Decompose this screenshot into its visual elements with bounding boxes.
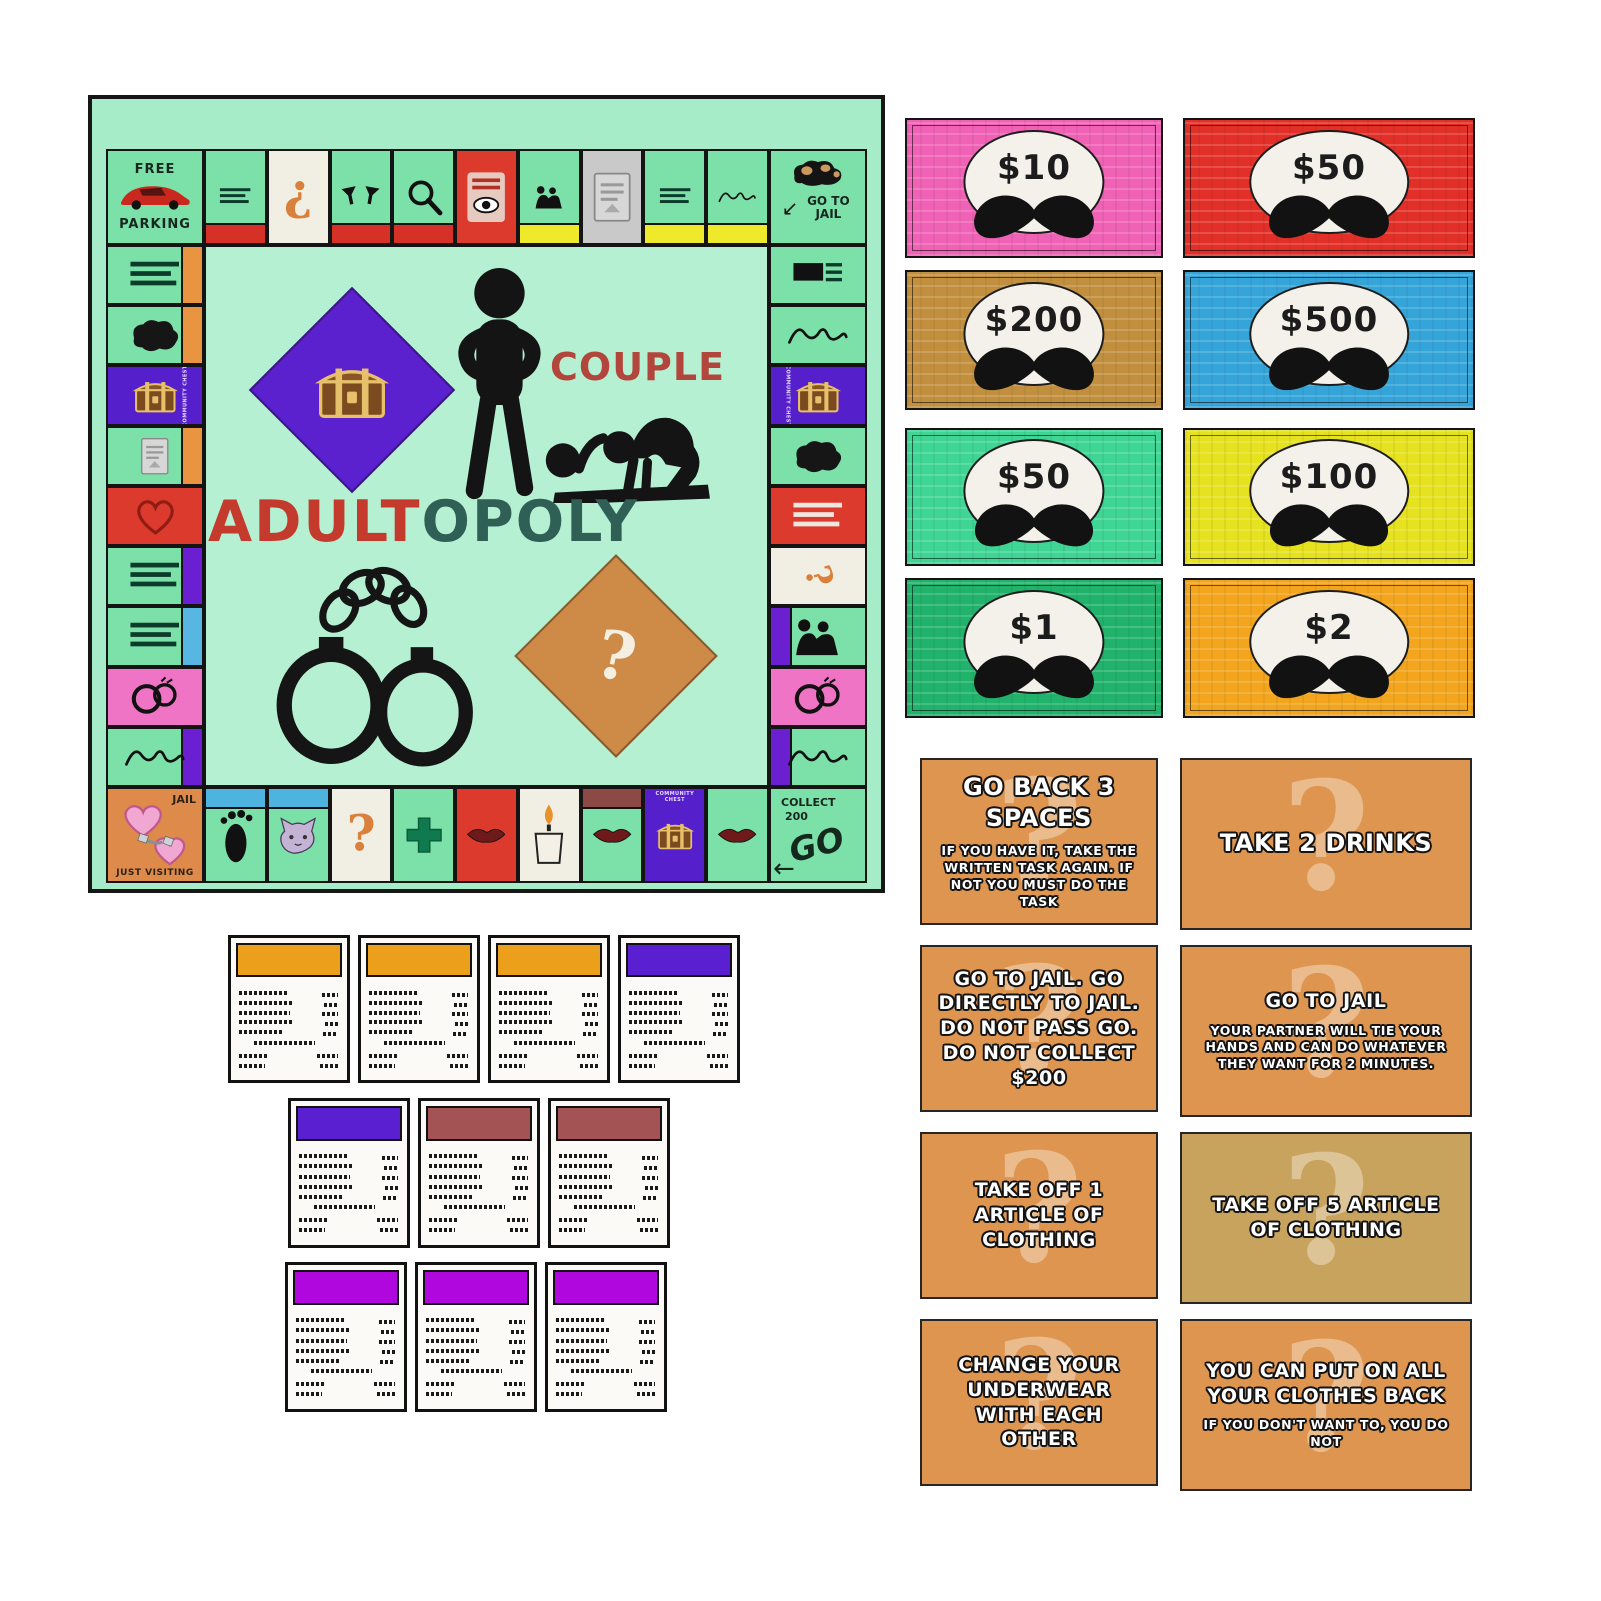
- deed-text-noise: [429, 1154, 478, 1158]
- deed-text-noise: [645, 1186, 658, 1190]
- deed-text-noise: [382, 1156, 398, 1160]
- deed-text-noise: [714, 1003, 728, 1007]
- bill-value: $1: [965, 608, 1102, 648]
- deed-text-noise: [447, 1054, 468, 1058]
- question-mark-icon: ?: [533, 573, 699, 739]
- board-center: COUPLE ADULTOPOLY ?: [204, 245, 769, 787]
- task-card-title: YOU CAN PUT ON ALL YOUR CLOTHES BACK: [1199, 1359, 1452, 1408]
- rings-icon: [784, 676, 852, 716]
- parking-label: PARKING: [119, 217, 191, 232]
- deed-text-noise: [429, 1175, 480, 1179]
- deed-text-noise: [637, 1392, 655, 1396]
- deed-text-noise: [299, 1175, 350, 1179]
- rings-icon: [121, 676, 189, 716]
- board-space-bottom-4: [392, 787, 455, 883]
- task-card-6: ? TAKE OFF 5 ARTICLE OF CLOTHING: [1180, 1132, 1472, 1304]
- deed-text-noise: [369, 1001, 424, 1005]
- task-card-text: TAKE OFF 5 ARTICLE OF CLOTHING: [1199, 1146, 1452, 1291]
- board-space-right-5: [769, 486, 867, 546]
- deed-text-noise: [369, 991, 418, 995]
- deed-text-noise: [296, 1339, 347, 1343]
- board-space-top-4: [392, 149, 455, 245]
- deed-text-noise: [559, 1228, 584, 1232]
- board-space-left-9: [106, 727, 204, 787]
- task-card-text: GO TO JAIL YOUR PARTNER WILL TIE YOUR HA…: [1199, 959, 1452, 1104]
- task-card-title: TAKE OFF 5 ARTICLE OF CLOTHING: [1199, 1193, 1452, 1242]
- mustache-icon: [1245, 187, 1412, 250]
- deed-text-noise: [322, 1012, 338, 1016]
- deed-text-noise: [299, 1218, 328, 1222]
- chest-icon: [784, 375, 852, 415]
- money-bill-1: $1: [905, 578, 1163, 718]
- deed-text-noise: [509, 1340, 525, 1344]
- deed-text-noise: [642, 1350, 655, 1354]
- deed-text-noise: [556, 1318, 605, 1322]
- deed-text-noise: [385, 1186, 398, 1190]
- board-space-bottom-7: [581, 787, 644, 883]
- board-space-right-6: ?: [769, 546, 867, 606]
- deed-text-noise: [556, 1349, 610, 1353]
- deed-text-noise: [639, 1340, 655, 1344]
- magnifier-icon: [403, 164, 445, 230]
- deed-text-noise: [299, 1185, 353, 1189]
- deed-text-noise: [577, 1054, 598, 1058]
- deed-text-noise: [556, 1359, 601, 1363]
- deed-text-noise: [512, 1176, 528, 1180]
- script-icon: [121, 737, 189, 777]
- deed-text-noise: [629, 1001, 684, 1005]
- deed-text-noise: [559, 1195, 604, 1199]
- task-card-body: YOUR PARTNER WILL TIE YOUR HANDS AND CAN…: [1199, 1023, 1452, 1074]
- board-space-bottom-8: COMMUNITY CHEST: [643, 787, 706, 883]
- community-chest-label: COMMUNITY CHEST: [182, 365, 188, 425]
- board-space-top-5: [455, 149, 518, 245]
- task-card-text: TAKE 2 DRINKS: [1199, 772, 1452, 917]
- deed-card-r1-c4: [618, 935, 740, 1083]
- textlines-icon: [121, 255, 189, 295]
- deed-text-noise: [239, 1011, 290, 1015]
- deed-text-noise: [381, 1330, 395, 1334]
- textlines-icon: [121, 616, 189, 656]
- board-space-bottom-2: [267, 787, 330, 883]
- corner-go: COLLECT 200 GO ←: [769, 787, 867, 883]
- textlines-icon: [654, 164, 696, 230]
- deed-text-noise: [454, 1003, 468, 1007]
- board-space-right-8: [769, 667, 867, 727]
- critters-icon: [787, 157, 849, 191]
- deed-text-noise: [239, 1054, 268, 1058]
- bill-value: $200: [965, 300, 1102, 340]
- deed-text-noise: [559, 1154, 608, 1158]
- deed-text-noise: [582, 993, 598, 997]
- board-space-right-4: [769, 426, 867, 486]
- deed-text-noise: [426, 1359, 471, 1363]
- deed-body: [553, 1311, 659, 1402]
- chest-icon: [654, 802, 696, 868]
- deed-text-noise: [317, 1054, 338, 1058]
- deed-text-noise: [499, 1064, 524, 1068]
- task-card-body: IF YOU HAVE IT, TAKE THE WRITTEN TASK AG…: [936, 843, 1142, 911]
- bill-value: $10: [965, 148, 1102, 188]
- deed-text-noise: [239, 991, 288, 995]
- deed-text-noise: [580, 1064, 598, 1068]
- deed-text-noise: [556, 1392, 581, 1396]
- task-card-title: GO TO JAIL. GO DIRECTLY TO JAIL. DO NOT …: [936, 967, 1142, 1090]
- glasses-icon: [340, 164, 382, 230]
- board-space-left-4: [106, 426, 204, 486]
- deed-text-noise: [514, 1041, 575, 1045]
- deed-text-noise: [379, 1340, 395, 1344]
- deed-text-noise: [644, 1041, 705, 1045]
- deed-text-noise: [384, 1166, 398, 1170]
- flag-icon: [784, 255, 852, 295]
- board-space-right-2: [769, 305, 867, 365]
- textlines-icon: [214, 164, 256, 230]
- deed-text-noise: [509, 1320, 525, 1324]
- deed-text-noise: [429, 1164, 484, 1168]
- deed-text-noise: [507, 1392, 525, 1396]
- go-to-jail-label: GO TO JAIL: [802, 195, 854, 221]
- deed-text-noise: [444, 1205, 505, 1209]
- chest-icon: [121, 375, 189, 415]
- deed-body: [236, 984, 342, 1074]
- cross-icon: [403, 802, 445, 868]
- deed-text-noise: [712, 1012, 728, 1016]
- deed-text-noise: [254, 1041, 315, 1045]
- deed-text-noise: [374, 1382, 395, 1386]
- deed-text-noise: [644, 1166, 658, 1170]
- bill-value: $50: [965, 457, 1102, 497]
- task-card-4: ? GO TO JAIL YOUR PARTNER WILL TIE YOUR …: [1180, 945, 1472, 1117]
- heart-icon: [121, 496, 189, 536]
- board-space-left-6: [106, 546, 204, 606]
- deed-text-noise: [379, 1320, 395, 1324]
- cat-icon: [277, 802, 319, 868]
- deed-color-bar: [236, 943, 342, 977]
- money-bill-2: $2: [1183, 578, 1475, 718]
- deed-text-noise: [325, 1022, 338, 1026]
- deed-text-noise: [296, 1382, 325, 1386]
- deed-text-noise: [426, 1382, 455, 1386]
- task-card-2: ? TAKE 2 DRINKS: [1180, 758, 1472, 930]
- board-space-left-7: [106, 606, 204, 666]
- deed-text-noise: [383, 1196, 398, 1200]
- deed-color-bar: [293, 1270, 399, 1305]
- deed-text-noise: [382, 1350, 395, 1354]
- deed-text-noise: [441, 1369, 502, 1373]
- board-space-bottom-9: [706, 787, 769, 883]
- board-space-left-5: [106, 486, 204, 546]
- eye-icon: [465, 164, 507, 230]
- deed-card-r3-c2: [415, 1262, 537, 1412]
- heart-handcuffs-icon: [118, 802, 192, 874]
- deed-color-bar: [553, 1270, 659, 1305]
- board-space-top-1: [204, 149, 267, 245]
- graycard-icon: [591, 164, 633, 230]
- svg-text:?: ?: [346, 807, 375, 863]
- deed-text-noise: [629, 1064, 654, 1068]
- board-space-right-9: [769, 727, 867, 787]
- deed-text-noise: [426, 1349, 480, 1353]
- corner-go-to-jail: ↙ GO TO JAIL: [769, 149, 867, 245]
- deed-text-noise: [324, 1003, 338, 1007]
- deed-text-noise: [380, 1360, 395, 1364]
- deed-text-noise: [499, 1054, 528, 1058]
- whitelines-icon: [784, 496, 852, 536]
- svg-text:?: ?: [284, 169, 313, 225]
- board-space-left-1: [106, 245, 204, 305]
- candle-icon: [528, 802, 570, 868]
- deed-card-r1-c3: [488, 935, 610, 1083]
- q-icon: ?: [340, 802, 382, 868]
- corner-free-parking: FREE PARKING: [106, 149, 204, 245]
- deed-text-noise: [556, 1339, 607, 1343]
- board-space-right-3: COMMUNITY CHEST: [769, 365, 867, 425]
- deed-text-noise: [585, 1022, 598, 1026]
- mustache-icon: [960, 339, 1107, 402]
- deed-text-noise: [512, 1156, 528, 1160]
- deed-text-noise: [369, 1064, 394, 1068]
- task-card-body: IF YOU DON'T WANT TO, YOU DO NOT: [1199, 1417, 1452, 1451]
- task-card-text: TAKE OFF 1 ARTICLE OF CLOTHING: [936, 1145, 1142, 1285]
- deed-text-noise: [629, 1030, 674, 1034]
- task-card-title: CHANGE YOUR UNDERWEAR WITH EACH OTHER: [936, 1353, 1142, 1452]
- deed-text-noise: [426, 1328, 481, 1332]
- board-space-right-1: [769, 245, 867, 305]
- board-space-left-8: [106, 667, 204, 727]
- deed-text-noise: [715, 1022, 728, 1026]
- task-card-title: GO BACK 3 SPACES: [936, 772, 1142, 834]
- deed-text-noise: [239, 1030, 284, 1034]
- deed-text-noise: [369, 1020, 423, 1024]
- deed-text-noise: [640, 1228, 658, 1232]
- deed-text-noise: [239, 1064, 264, 1068]
- deed-text-noise: [429, 1185, 483, 1189]
- money-bill-50: $50: [1183, 118, 1475, 258]
- deed-text-noise: [239, 1020, 293, 1024]
- deed-text-noise: [584, 1003, 598, 1007]
- q-icon: ?: [790, 546, 847, 606]
- deed-text-noise: [369, 1011, 420, 1015]
- deed-text-noise: [639, 1320, 655, 1324]
- bill-value: $50: [1251, 148, 1407, 188]
- deed-text-noise: [512, 1350, 525, 1354]
- mustache-icon: [1245, 647, 1412, 710]
- board-space-bottom-5: [455, 787, 518, 883]
- lips-icon: [591, 802, 633, 868]
- deed-text-noise: [583, 1032, 598, 1036]
- deed-text-noise: [429, 1195, 474, 1199]
- deed-text-noise: [713, 1032, 728, 1036]
- task-card-7: ? CHANGE YOUR UNDERWEAR WITH EACH OTHER: [920, 1319, 1158, 1486]
- just-visiting-label: JUST VISITING: [108, 868, 202, 878]
- money-bill-100: $100: [1183, 428, 1475, 566]
- deed-text-noise: [499, 1001, 554, 1005]
- money-bill-10: $10: [905, 118, 1163, 258]
- board-space-bottom-6: [518, 787, 581, 883]
- deed-text-noise: [377, 1218, 398, 1222]
- deed-text-noise: [296, 1349, 350, 1353]
- deed-text-noise: [369, 1030, 414, 1034]
- deed-color-bar: [496, 943, 602, 977]
- treasure-chest-icon: [281, 319, 423, 461]
- deed-text-noise: [571, 1369, 632, 1373]
- community-chest-label: COMMUNITY CHEST: [785, 365, 791, 425]
- deed-text-noise: [323, 1032, 338, 1036]
- deed-card-r1-c1: [228, 935, 350, 1083]
- deed-text-noise: [452, 993, 468, 997]
- task-card-title: GO TO JAIL: [1265, 989, 1386, 1014]
- couple-icon: [784, 616, 852, 656]
- collect-amount: 200: [785, 810, 808, 823]
- board-space-top-9: [706, 149, 769, 245]
- board-space-top-7: [581, 149, 644, 245]
- deed-text-noise: [382, 1176, 398, 1180]
- board-space-bottom-1: [204, 787, 267, 883]
- deed-text-noise: [296, 1328, 351, 1332]
- deed-text-noise: [582, 1012, 598, 1016]
- deed-card-r2-c1: [288, 1098, 410, 1248]
- blob-icon: [784, 436, 852, 476]
- task-card-text: GO TO JAIL. GO DIRECTLY TO JAIL. DO NOT …: [936, 958, 1142, 1098]
- game-board: FREE PARKING ↙ GO TO JAIL JAIL JUST VISI…: [88, 95, 885, 893]
- deed-text-noise: [559, 1185, 613, 1189]
- task-card-text: CHANGE YOUR UNDERWEAR WITH EACH OTHER: [936, 1332, 1142, 1472]
- deed-color-bar: [626, 943, 732, 977]
- community-chest-label: COMMUNITY CHEST: [645, 791, 704, 803]
- deed-text-noise: [311, 1369, 372, 1373]
- deed-text-noise: [515, 1186, 528, 1190]
- chance-card-pile: ?: [514, 554, 718, 758]
- script-icon: [784, 737, 852, 777]
- deed-body: [423, 1311, 529, 1402]
- title-couple: COUPLE: [550, 345, 725, 389]
- board-space-bottom-3: ?: [330, 787, 393, 883]
- deed-text-noise: [499, 1020, 553, 1024]
- deed-text-noise: [556, 1328, 611, 1332]
- deed-card-r3-c1: [285, 1262, 407, 1412]
- deed-card-r1-c2: [358, 935, 480, 1083]
- deed-text-noise: [426, 1339, 477, 1343]
- deed-text-noise: [643, 1196, 658, 1200]
- bill-value: $500: [1251, 300, 1407, 340]
- lips-icon: [716, 802, 758, 868]
- deed-body: [296, 1147, 402, 1238]
- deed-text-noise: [507, 1218, 528, 1222]
- deed-text-noise: [299, 1228, 324, 1232]
- deed-text-noise: [629, 1054, 658, 1058]
- script-icon: [716, 164, 758, 230]
- deed-text-noise: [452, 1012, 468, 1016]
- deed-body: [556, 1147, 662, 1238]
- task-card-8: ? YOU CAN PUT ON ALL YOUR CLOTHES BACK I…: [1180, 1319, 1472, 1491]
- deed-text-noise: [499, 1030, 544, 1034]
- svg-text:?: ?: [796, 561, 841, 592]
- deed-text-noise: [296, 1359, 341, 1363]
- community-chest-card-pile: [249, 287, 455, 493]
- money-bill-50: $50: [905, 428, 1163, 566]
- deed-text-noise: [380, 1228, 398, 1232]
- mustache-icon: [960, 496, 1107, 558]
- deed-color-bar: [556, 1106, 662, 1141]
- deed-text-noise: [710, 1064, 728, 1068]
- jail-label: JAIL: [172, 793, 196, 806]
- deed-text-noise: [514, 1166, 528, 1170]
- deed-text-noise: [629, 1020, 683, 1024]
- deed-text-noise: [429, 1228, 454, 1232]
- deed-text-noise: [499, 1011, 550, 1015]
- deed-text-noise: [450, 1064, 468, 1068]
- deed-text-noise: [455, 1022, 468, 1026]
- deed-text-noise: [556, 1382, 585, 1386]
- deed-text-noise: [426, 1318, 475, 1322]
- deed-body: [366, 984, 472, 1074]
- deed-text-noise: [559, 1175, 610, 1179]
- task-card-title: TAKE 2 DRINKS: [1220, 828, 1433, 859]
- deed-text-noise: [320, 1064, 338, 1068]
- deed-card-r2-c2: [418, 1098, 540, 1248]
- money-bill-200: $200: [905, 270, 1163, 410]
- deed-text-noise: [299, 1195, 344, 1199]
- deed-text-noise: [510, 1360, 525, 1364]
- deed-text-noise: [513, 1196, 528, 1200]
- deed-color-bar: [426, 1106, 532, 1141]
- deed-text-noise: [559, 1164, 614, 1168]
- deed-color-bar: [423, 1270, 529, 1305]
- deed-text-noise: [510, 1228, 528, 1232]
- deed-text-noise: [712, 993, 728, 997]
- deed-card-r2-c3: [548, 1098, 670, 1248]
- deed-text-noise: [640, 1360, 655, 1364]
- couple-icon: [528, 164, 570, 230]
- board-space-top-6: [518, 149, 581, 245]
- graycard-icon: [121, 436, 189, 476]
- board-space-top-8: [643, 149, 706, 245]
- money-bill-500: $500: [1183, 270, 1475, 410]
- deed-text-noise: [322, 993, 338, 997]
- task-card-5: ? TAKE OFF 1 ARTICLE OF CLOTHING: [920, 1132, 1158, 1299]
- deed-text-noise: [637, 1218, 658, 1222]
- deed-text-noise: [296, 1392, 321, 1396]
- mustache-icon: [960, 647, 1107, 710]
- task-card-title: TAKE OFF 1 ARTICLE OF CLOTHING: [936, 1178, 1142, 1252]
- deed-text-noise: [629, 991, 678, 995]
- corner-jail: JAIL JUST VISITING: [106, 787, 204, 883]
- deed-text-noise: [314, 1205, 375, 1209]
- task-card-text: YOU CAN PUT ON ALL YOUR CLOTHES BACK IF …: [1199, 1333, 1452, 1478]
- deed-text-noise: [239, 1001, 294, 1005]
- board-track: FREE PARKING ↙ GO TO JAIL JAIL JUST VISI…: [106, 149, 867, 883]
- foot-icon: [214, 802, 256, 868]
- task-card-1: ? GO BACK 3 SPACES IF YOU HAVE IT, TAKE …: [920, 758, 1158, 925]
- bill-value: $2: [1251, 608, 1407, 648]
- board-space-left-3: COMMUNITY CHEST: [106, 365, 204, 425]
- mustache-icon: [1245, 496, 1412, 558]
- deed-text-noise: [453, 1032, 468, 1036]
- board-space-top-2: ?: [267, 149, 330, 245]
- deed-text-noise: [299, 1154, 348, 1158]
- go-label: GO: [785, 819, 848, 870]
- blob-icon: [121, 315, 189, 355]
- task-card-text: GO BACK 3 SPACES IF YOU HAVE IT, TAKE TH…: [936, 771, 1142, 911]
- textlines-icon: [121, 556, 189, 596]
- script-icon: [784, 315, 852, 355]
- deed-body: [426, 1147, 532, 1238]
- deed-text-noise: [369, 1054, 398, 1058]
- deed-card-r3-c3: [545, 1262, 667, 1412]
- deed-color-bar: [296, 1106, 402, 1141]
- deed-color-bar: [366, 943, 472, 977]
